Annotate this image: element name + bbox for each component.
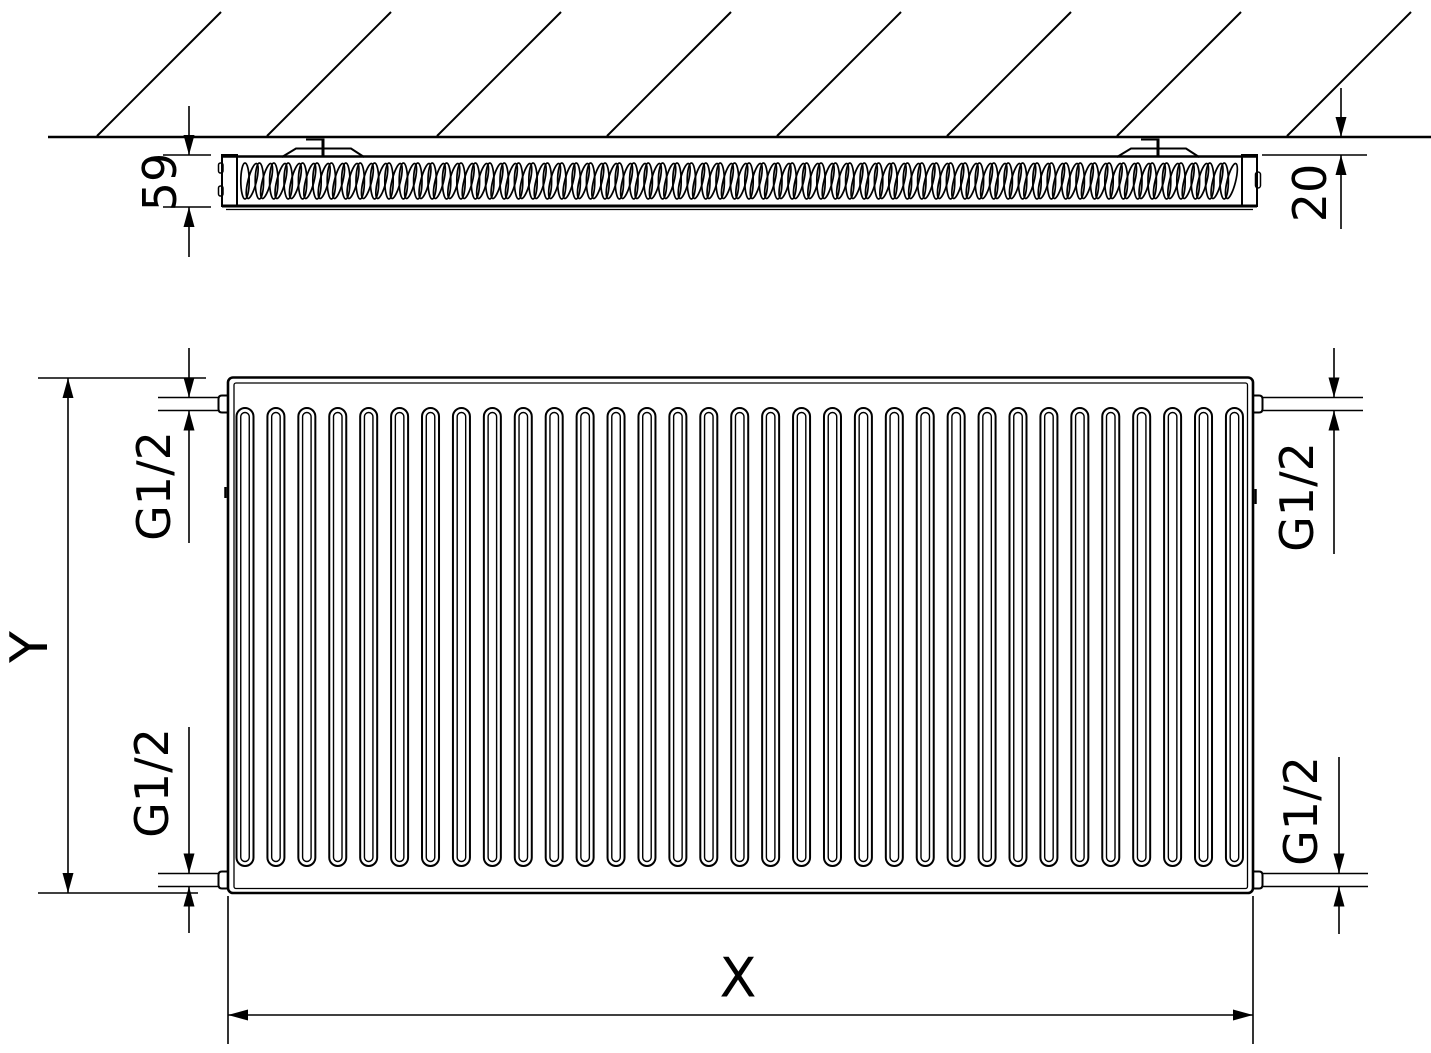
end-cap-left bbox=[222, 155, 237, 206]
fin-loop bbox=[863, 163, 880, 200]
fin-loop bbox=[517, 163, 534, 200]
hatch-line bbox=[777, 12, 901, 136]
connection-label-top-right: G1/2 bbox=[1270, 442, 1324, 552]
channel-outer bbox=[1226, 408, 1243, 866]
fin-loop bbox=[1165, 163, 1182, 200]
front-view: G1/2 G1/2 G1/2 bbox=[0, 348, 1368, 1044]
wall-bracket-right bbox=[1117, 140, 1199, 158]
fin-loop bbox=[316, 163, 333, 200]
arrow-down-icon bbox=[184, 378, 195, 398]
channel-outer bbox=[669, 408, 686, 866]
fin-loop bbox=[906, 163, 923, 200]
arrow-right-icon bbox=[1233, 1010, 1253, 1021]
hatch-line bbox=[1287, 12, 1411, 136]
arrow-left-icon bbox=[228, 1010, 248, 1021]
depth-label: 59 bbox=[133, 153, 187, 212]
channel-outer bbox=[422, 408, 439, 866]
fin-loop bbox=[589, 163, 606, 200]
fin-loop bbox=[791, 163, 808, 200]
channel-outer bbox=[1040, 408, 1057, 866]
arrow-up-icon bbox=[63, 378, 74, 398]
panel-channels bbox=[237, 408, 1243, 866]
fin-loop bbox=[949, 163, 966, 200]
arrow-down-icon bbox=[63, 873, 74, 893]
fin-loop bbox=[301, 163, 318, 200]
convector-fins bbox=[241, 163, 1240, 200]
fin-loop bbox=[575, 163, 592, 200]
fin-loop bbox=[287, 163, 304, 200]
connection-label-bottom-right: G1/2 bbox=[1274, 756, 1328, 866]
fin-loop bbox=[719, 163, 736, 200]
fin-loop bbox=[978, 163, 995, 200]
fin-loop bbox=[633, 163, 650, 200]
hatch-line bbox=[97, 12, 221, 136]
fin-loop bbox=[748, 163, 765, 200]
channel-outer bbox=[237, 408, 254, 866]
fin-loop bbox=[733, 163, 750, 200]
arrow-down-icon bbox=[184, 135, 195, 155]
channel-outer bbox=[391, 408, 408, 866]
fin-loop bbox=[460, 163, 477, 200]
fin-loop bbox=[1007, 163, 1024, 200]
fin-loop bbox=[1079, 163, 1096, 200]
arrow-down-icon bbox=[1329, 378, 1340, 398]
fin-loop bbox=[402, 163, 419, 200]
fin-loop bbox=[489, 163, 506, 200]
channel-outer bbox=[700, 408, 717, 866]
wall-hatching bbox=[97, 12, 1411, 136]
fin-loop bbox=[273, 163, 290, 200]
fin-loop bbox=[993, 163, 1010, 200]
channel-outer bbox=[1071, 408, 1088, 866]
arrow-down-icon bbox=[1334, 854, 1345, 874]
fin-loop bbox=[330, 163, 347, 200]
fin-loop bbox=[1050, 163, 1067, 200]
hatch-line bbox=[607, 12, 731, 136]
hatch-line bbox=[947, 12, 1071, 136]
channel-outer bbox=[484, 408, 501, 866]
connection-label-top-left: G1/2 bbox=[127, 431, 181, 541]
fin-loop bbox=[1021, 163, 1038, 200]
channel-outer bbox=[1133, 408, 1150, 866]
dimension-conn-bottom-right: G1/2 bbox=[1262, 756, 1368, 934]
fin-loop bbox=[647, 163, 664, 200]
channel-outer bbox=[855, 408, 872, 866]
fin-loop bbox=[820, 163, 837, 200]
fin-loop bbox=[777, 163, 794, 200]
channel-outer bbox=[515, 408, 532, 866]
fin-loop bbox=[849, 163, 866, 200]
arrow-up-icon bbox=[1334, 887, 1345, 907]
channel-outer bbox=[1164, 408, 1181, 866]
arrow-down-icon bbox=[1336, 117, 1347, 137]
channel-outer bbox=[638, 408, 655, 866]
fin-loop bbox=[690, 163, 707, 200]
channel-outer bbox=[577, 408, 594, 866]
arrow-up-icon bbox=[1329, 411, 1340, 431]
channel-outer bbox=[298, 408, 315, 866]
fin-loop bbox=[877, 163, 894, 200]
fin-loop bbox=[1036, 163, 1053, 200]
fin-loop bbox=[359, 163, 376, 200]
hatch-line bbox=[267, 12, 391, 136]
fin-loop bbox=[1065, 163, 1082, 200]
arrow-up-icon bbox=[1336, 155, 1347, 175]
fin-loop bbox=[417, 163, 434, 200]
channel-outer bbox=[979, 408, 996, 866]
fin-loop bbox=[1194, 163, 1211, 200]
end-cap-left-bump-bottom bbox=[219, 186, 224, 196]
fin-loop bbox=[1180, 163, 1197, 200]
arrow-up-icon bbox=[184, 411, 195, 431]
fin-loop bbox=[532, 163, 549, 200]
fin-loop bbox=[244, 163, 261, 200]
channel-outer bbox=[267, 408, 284, 866]
fin-loop bbox=[604, 163, 621, 200]
drawing-canvas: 59 20 G1/2 bbox=[0, 0, 1431, 1053]
fin-loop bbox=[1122, 163, 1139, 200]
channel-outer bbox=[1102, 408, 1119, 866]
fin-loop bbox=[935, 163, 952, 200]
fin-loop bbox=[892, 163, 909, 200]
fin-loop bbox=[258, 163, 275, 200]
fin-loop bbox=[834, 163, 851, 200]
dimension-conn-top-right: G1/2 bbox=[1262, 348, 1363, 554]
dimension-width: X bbox=[228, 896, 1253, 1044]
channel-outer bbox=[1195, 408, 1212, 866]
channel-outer bbox=[762, 408, 779, 866]
channel-outer bbox=[824, 408, 841, 866]
hatch-line bbox=[437, 12, 561, 136]
channel-outer bbox=[731, 408, 748, 866]
fin-loop bbox=[503, 163, 520, 200]
dimension-conn-bottom-left: G1/2 bbox=[125, 727, 219, 933]
channel-outer bbox=[948, 408, 965, 866]
radiator-section bbox=[219, 155, 1261, 210]
channel-outer bbox=[329, 408, 346, 866]
fin-loop bbox=[373, 163, 390, 200]
fin-loop bbox=[762, 163, 779, 200]
fin-loop bbox=[431, 163, 448, 200]
height-label: Y bbox=[0, 631, 60, 664]
channel-outer bbox=[886, 408, 903, 866]
fin-loop bbox=[1151, 163, 1168, 200]
fin-loop bbox=[964, 163, 981, 200]
fin-loop bbox=[618, 163, 635, 200]
wall-gap-label: 20 bbox=[1283, 164, 1337, 223]
radiator-technical-drawing: 59 20 G1/2 bbox=[0, 0, 1431, 1053]
fin-loop bbox=[1137, 163, 1154, 200]
fin-loop bbox=[676, 163, 693, 200]
channel-outer bbox=[453, 408, 470, 866]
channel-outer bbox=[360, 408, 377, 866]
channel-outer bbox=[917, 408, 934, 866]
fin-loop bbox=[1223, 163, 1240, 200]
fin-loop bbox=[474, 163, 491, 200]
dimension-depth: 59 bbox=[133, 106, 211, 257]
top-view: 59 20 bbox=[48, 12, 1431, 257]
width-label: X bbox=[720, 947, 757, 1010]
hatch-line bbox=[1117, 12, 1241, 136]
fin-loop bbox=[921, 163, 938, 200]
wall-bracket-left bbox=[282, 140, 364, 158]
fin-loop bbox=[705, 163, 722, 200]
fin-loop bbox=[561, 163, 578, 200]
fin-loop bbox=[546, 163, 563, 200]
arrow-down-icon bbox=[184, 854, 195, 874]
fin-loop bbox=[345, 163, 362, 200]
fin-loop bbox=[1108, 163, 1125, 200]
channel-outer bbox=[1010, 408, 1027, 866]
fin-loop bbox=[388, 163, 405, 200]
fin-loop bbox=[805, 163, 822, 200]
fin-loop bbox=[661, 163, 678, 200]
channel-outer bbox=[793, 408, 810, 866]
end-cap-left-bump-top bbox=[219, 163, 224, 173]
fin-loop bbox=[1209, 163, 1226, 200]
connection-label-bottom-left: G1/2 bbox=[125, 728, 179, 838]
fin-loop bbox=[445, 163, 462, 200]
channel-outer bbox=[546, 408, 563, 866]
channel-outer bbox=[608, 408, 625, 866]
arrow-up-icon bbox=[184, 887, 195, 907]
fin-loop bbox=[1093, 163, 1110, 200]
